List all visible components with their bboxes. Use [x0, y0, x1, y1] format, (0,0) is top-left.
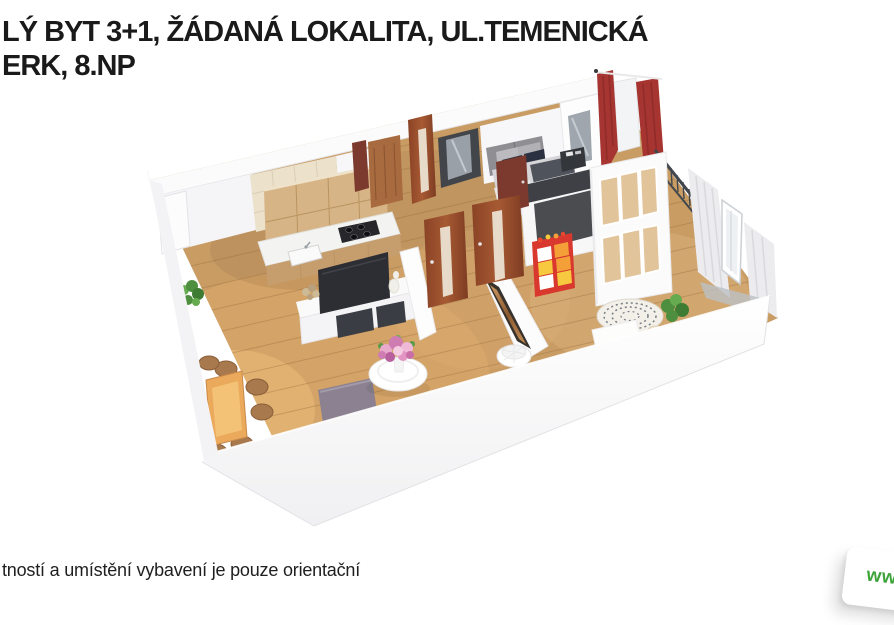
page: LÝ BYT 3+1, ŽÁDANÁ LOKALITA, UL.TEMENICK…: [0, 0, 894, 625]
disclaimer-text: tností a umístění vybavení je pouze orie…: [2, 560, 360, 581]
watermark-card: www: [841, 546, 894, 615]
vase: [389, 279, 399, 293]
toy-storage: [532, 232, 575, 297]
watermark-url-text: www: [865, 565, 894, 592]
floorplan-3d-render: [0, 0, 894, 625]
childroom-wardrobe: [590, 152, 672, 306]
